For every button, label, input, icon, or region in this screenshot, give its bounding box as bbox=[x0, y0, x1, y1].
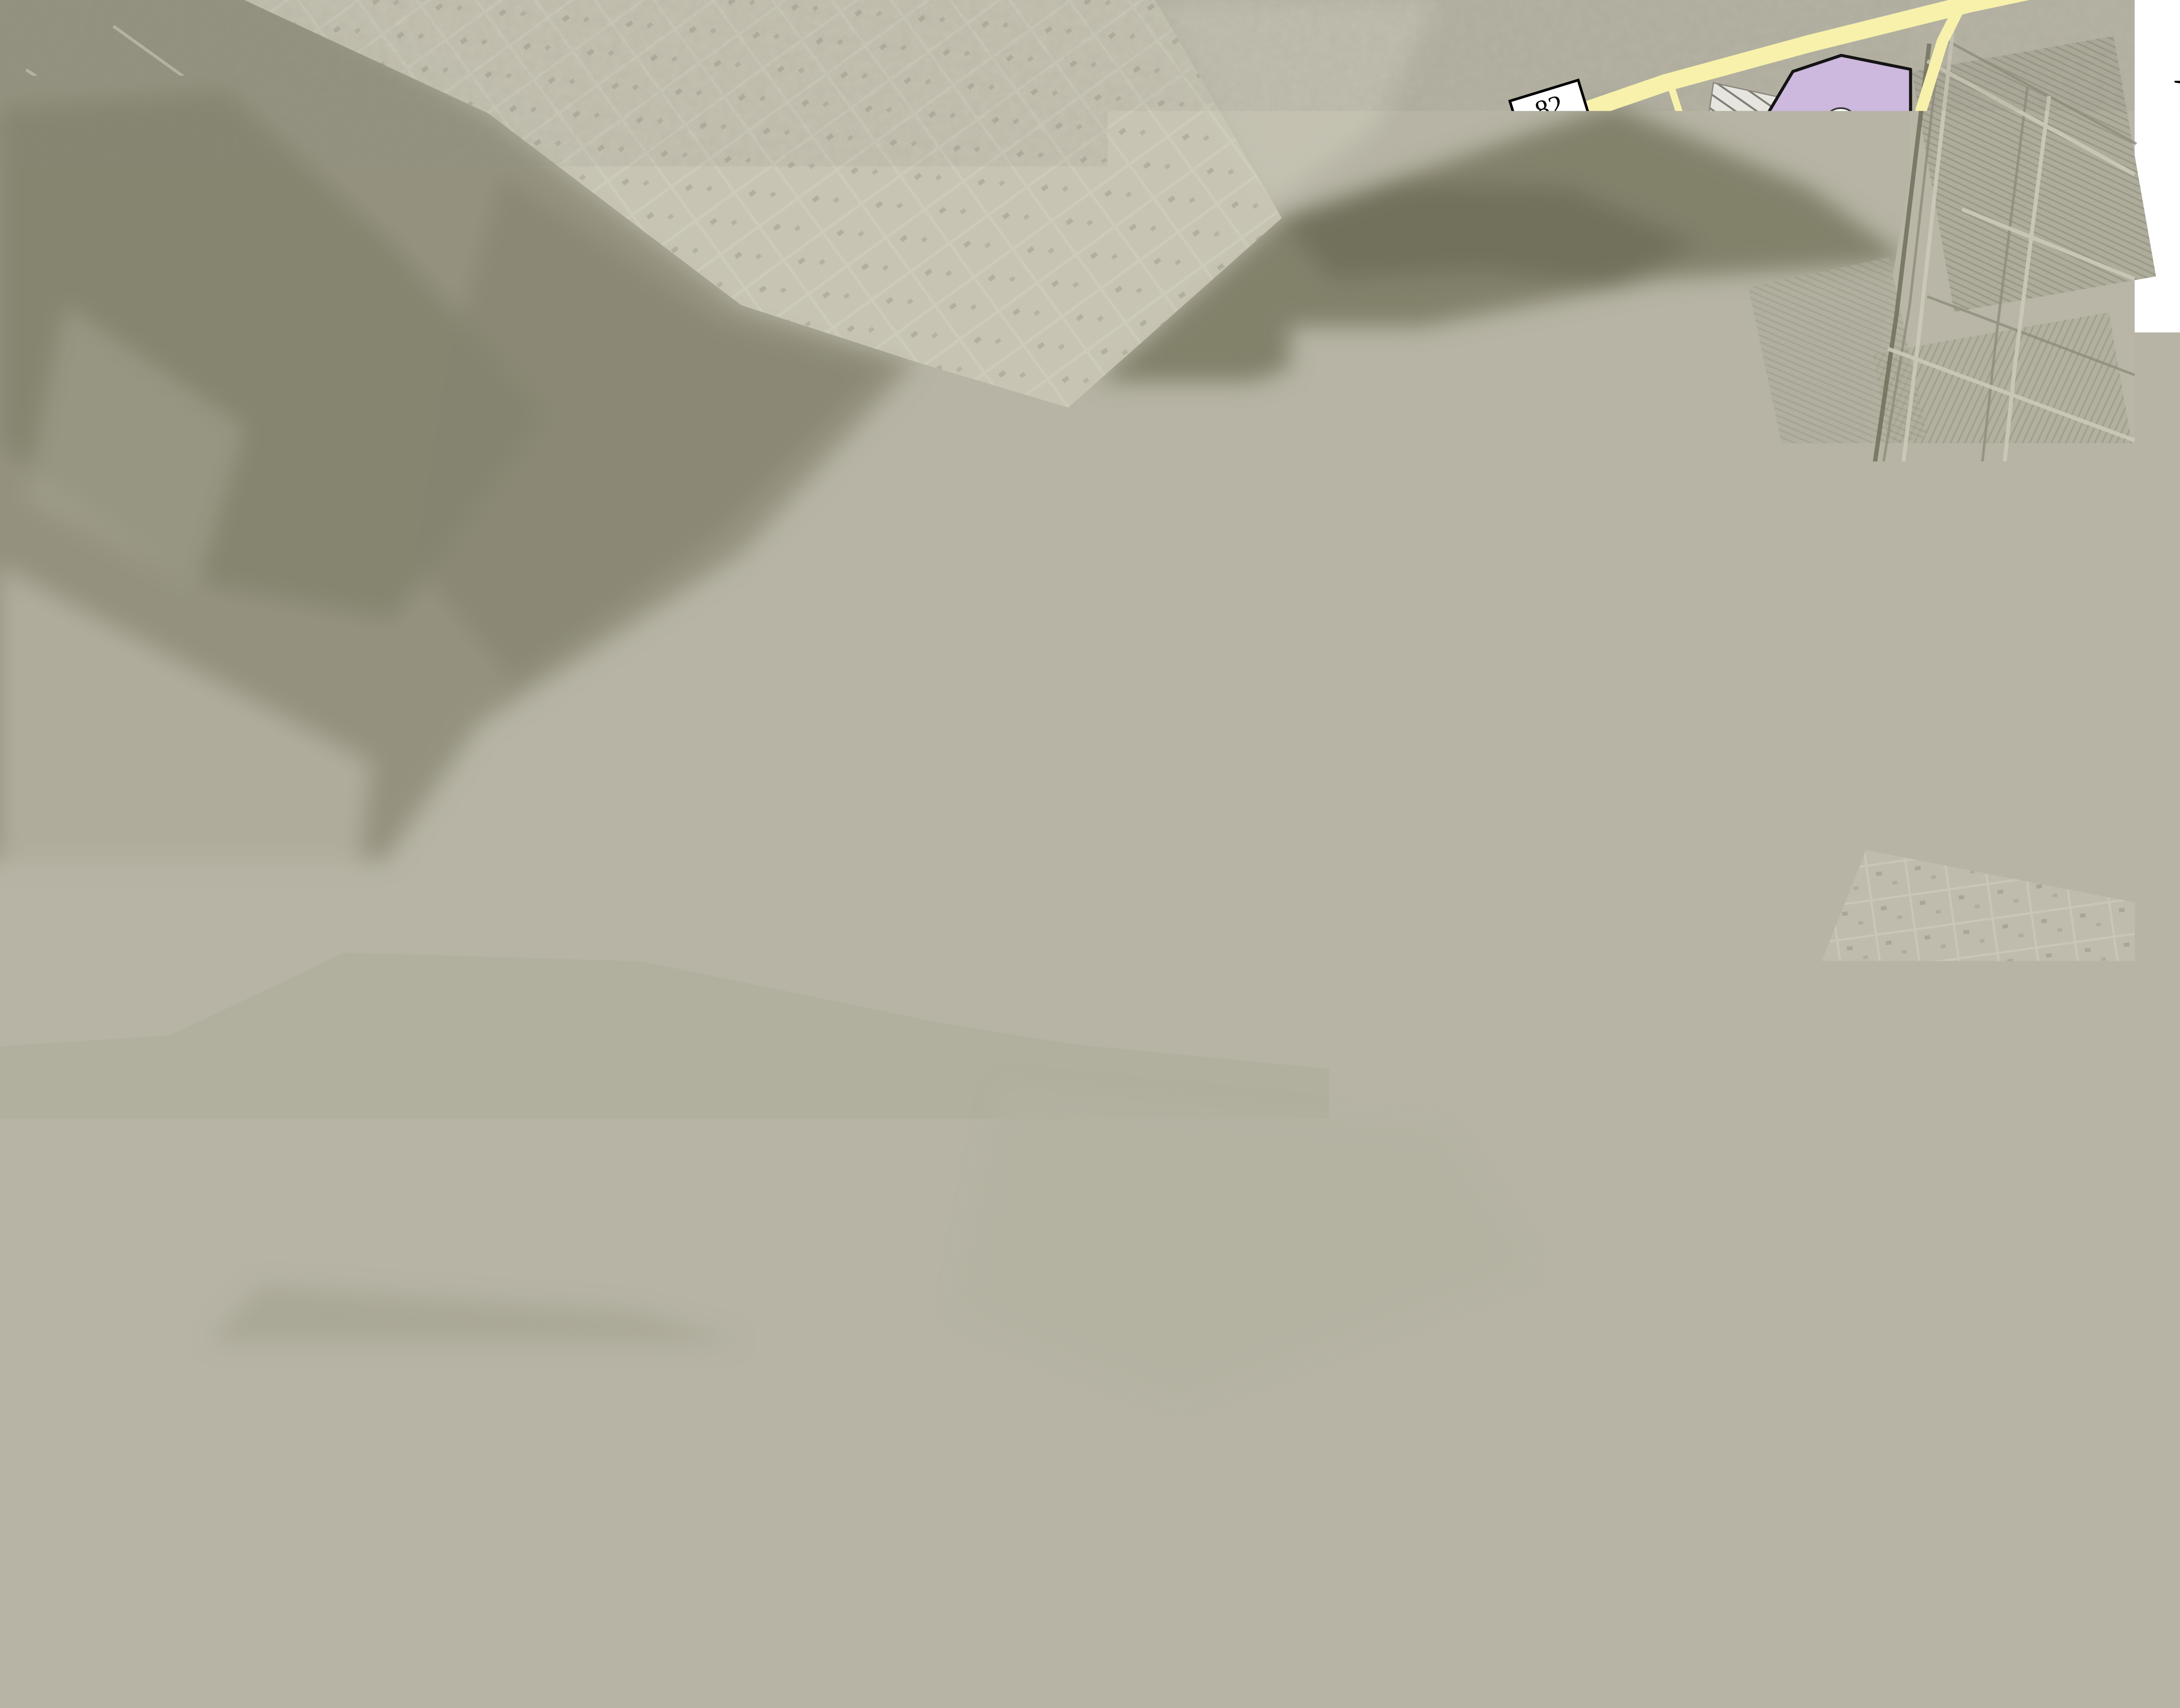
svg-text:23: 23 bbox=[668, 1228, 692, 1255]
svg-text:17: 17 bbox=[1408, 640, 1433, 667]
svg-text:19: 19 bbox=[1521, 360, 1545, 387]
svg-text:9 Maal Wines: 9 Maal Wines bbox=[2162, 1364, 2180, 1399]
svg-text:7 Cheval des Andes: 7 Cheval des Andes bbox=[2162, 1285, 2180, 1320]
svg-text:4: 4 bbox=[769, 894, 781, 921]
svg-text:9: 9 bbox=[977, 568, 989, 595]
svg-text:22: 22 bbox=[583, 1109, 607, 1136]
svg-text:10: 10 bbox=[997, 494, 1021, 521]
svg-text:7: 7 bbox=[1062, 853, 1074, 880]
svg-text:13: 13 bbox=[1180, 369, 1205, 396]
svg-text:18: 18 bbox=[1569, 467, 1594, 494]
svg-text:REFERENCIAS GEOGRÁFICAS: REFERENCIAS GEOGRÁFICAS bbox=[2176, 252, 2180, 291]
svg-text:6: 6 bbox=[299, 1358, 311, 1385]
svg-text:11 Mil Suelos: 11 Mil Suelos bbox=[2162, 1443, 2180, 1478]
svg-text:21: 21 bbox=[1693, 314, 1718, 341]
svg-text:6 Alta Vista: 6 Alta Vista bbox=[2162, 1245, 2180, 1281]
svg-text:6: 6 bbox=[968, 614, 980, 641]
svg-text:12: 12 bbox=[1063, 384, 1087, 411]
svg-text:12 Sur de los Andes: 12 Sur de los Andes bbox=[2162, 1482, 2180, 1518]
svg-text:VISTALBA: VISTALBA bbox=[1914, 891, 2015, 914]
svg-text:2 Pastoral: 2 Pastoral bbox=[2162, 1088, 2180, 1123]
svg-text:3: 3 bbox=[1348, 805, 1360, 832]
svg-text:7: 7 bbox=[894, 737, 906, 764]
svg-text:8: 8 bbox=[907, 661, 920, 688]
svg-text:16: 16 bbox=[1265, 951, 1290, 978]
svg-text:21: 21 bbox=[1560, 221, 1584, 248]
svg-text:2: 2 bbox=[554, 750, 566, 777]
svg-text:11: 11 bbox=[1004, 408, 1028, 435]
svg-text:14: 14 bbox=[1246, 543, 1271, 570]
svg-text:21: 21 bbox=[1829, 112, 1853, 139]
svg-text:20: 20 bbox=[1570, 312, 1595, 339]
svg-text:5: 5 bbox=[850, 840, 862, 867]
svg-text:15: 15 bbox=[1210, 787, 1234, 814]
svg-text:3: 3 bbox=[1158, 641, 1170, 668]
svg-text:8 De Blasis: 8 De Blasis bbox=[2162, 1324, 2180, 1360]
svg-text:4 Conalbi: 4 Conalbi bbox=[2162, 1167, 2180, 1202]
svg-text:13: 13 bbox=[1328, 448, 1353, 475]
svg-text:5 Riccitelli: 5 Riccitelli bbox=[2162, 1206, 2180, 1242]
svg-text:3: 3 bbox=[729, 680, 741, 708]
svg-text:24: 24 bbox=[837, 1298, 862, 1325]
svg-text:LAS COMPUERTAS: LAS COMPUERTAS bbox=[2173, 66, 2180, 138]
svg-text:82: 82 bbox=[92, 1001, 123, 1034]
svg-text:10 Marchena: 10 Marchena bbox=[2162, 1403, 2180, 1439]
svg-text:3 Terrazas de los Andes: 3 Terrazas de los Andes bbox=[2162, 1127, 2180, 1163]
